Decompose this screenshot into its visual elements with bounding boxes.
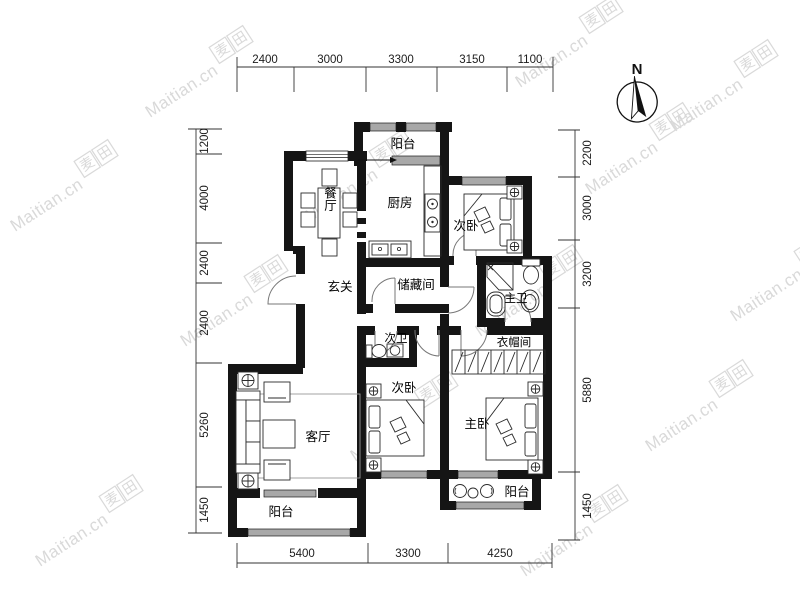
dim-label: 2400 [199, 250, 211, 276]
svg-text:Maitian.cn: Maitian.cn [142, 60, 222, 121]
watermark: Maitian.cn麦田 [720, 230, 800, 326]
toilet [372, 345, 386, 358]
dim-label: 2400 [199, 310, 211, 336]
room-label-foyer: 玄关 [327, 279, 352, 294]
room-label-dining: 餐厅 [322, 186, 336, 212]
dim-label: 3300 [388, 54, 414, 66]
dim-label: 1100 [518, 54, 543, 66]
room-label-master-bedroom: 主卧 [464, 417, 489, 431]
floor-plan: Maitian.cn麦田Maitian.cn麦田Maitian.cn麦田Mait… [0, 0, 800, 599]
dim-label: 3000 [582, 195, 594, 221]
dim-label: 4250 [487, 548, 513, 560]
balcony-chair [454, 485, 467, 498]
watermark: Maitian.cn麦田 [170, 255, 294, 351]
dim-label: 3150 [459, 54, 485, 66]
toilet [524, 266, 539, 284]
dim-label: 4000 [199, 185, 211, 211]
room-label-master-bath: 主卫 [505, 292, 528, 305]
dim-label: 5880 [582, 377, 594, 403]
svg-text:Maitian.cn: Maitian.cn [7, 174, 87, 235]
watermark: Maitian.cn麦田 [0, 140, 124, 236]
room-label-kitchen: 厨房 [387, 195, 412, 210]
room-label-storage: 储藏间 [397, 277, 435, 292]
dim-label: 3000 [317, 54, 343, 66]
balcony-chair [481, 485, 494, 498]
dim-label: 1450 [582, 493, 594, 519]
armchair [264, 460, 290, 480]
svg-text:Maitian.cn: Maitian.cn [727, 264, 800, 325]
stove [425, 194, 440, 232]
room-label-balcony-sw: 阳台 [268, 504, 293, 519]
dim-label: 3300 [395, 548, 421, 560]
sofa-back [236, 400, 246, 464]
room-label-cloakroom: 衣帽间 [497, 335, 532, 349]
svg-text:Maitian.cn: Maitian.cn [177, 289, 257, 350]
north-arrow-icon: N [615, 61, 660, 124]
dim-label: 3200 [582, 261, 594, 287]
watermark: Maitian.cn麦田 [635, 360, 759, 456]
living-room-furniture [236, 372, 360, 489]
room-label-bedroom-ne: 次卧 [453, 219, 478, 233]
dim-label: 1450 [199, 497, 211, 523]
storage-door-arc [372, 278, 395, 304]
room-label-bedroom-mid: 次卧 [391, 381, 416, 395]
se-balcony-furniture [454, 485, 494, 499]
svg-text:Maitian.cn: Maitian.cn [32, 509, 112, 570]
dim-label: 1200 [199, 128, 211, 154]
svg-text:Maitian.cn: Maitian.cn [517, 519, 597, 580]
armchair [264, 382, 290, 402]
watermark: Maitian.cn麦田 [25, 475, 149, 571]
balcony-table [468, 488, 478, 498]
room-label-balcony-north: 阳台 [390, 136, 415, 151]
dim-label: 2200 [582, 140, 594, 166]
dim-label: 5260 [199, 412, 211, 438]
toilet-tank [522, 259, 540, 266]
mid-bedroom-furniture [366, 384, 424, 472]
room-label-living-room: 客厅 [305, 429, 330, 444]
watermark: Maitian.cn麦田 [660, 40, 784, 136]
sofa-armrest [236, 391, 260, 400]
cloakroom-wardrobe [452, 350, 545, 374]
corridor-door-arc [448, 287, 474, 313]
svg-text:Maitian.cn: Maitian.cn [642, 394, 722, 455]
watermark: Maitian.cn麦田 [135, 26, 259, 122]
master-bedroom-furniture [486, 382, 543, 474]
dim-label: 5400 [289, 548, 315, 560]
sofa-armrest [236, 464, 260, 473]
toilet-tank [366, 345, 372, 358]
dimension-bottom: 5400 3300 4250 [237, 543, 552, 568]
dim-label: 2400 [252, 54, 278, 66]
north-label: N [632, 61, 643, 78]
coffee-table [263, 420, 295, 448]
room-label-balcony-se: 阳台 [504, 484, 529, 499]
second-bath-fixtures [366, 344, 403, 358]
dining-window [306, 151, 348, 161]
watermark: Maitian.cn麦田 [505, 0, 629, 91]
room-label-second-bath: 次卫 [385, 331, 408, 345]
dimension-top: 2400 3000 3300 3150 1100 [237, 54, 553, 92]
